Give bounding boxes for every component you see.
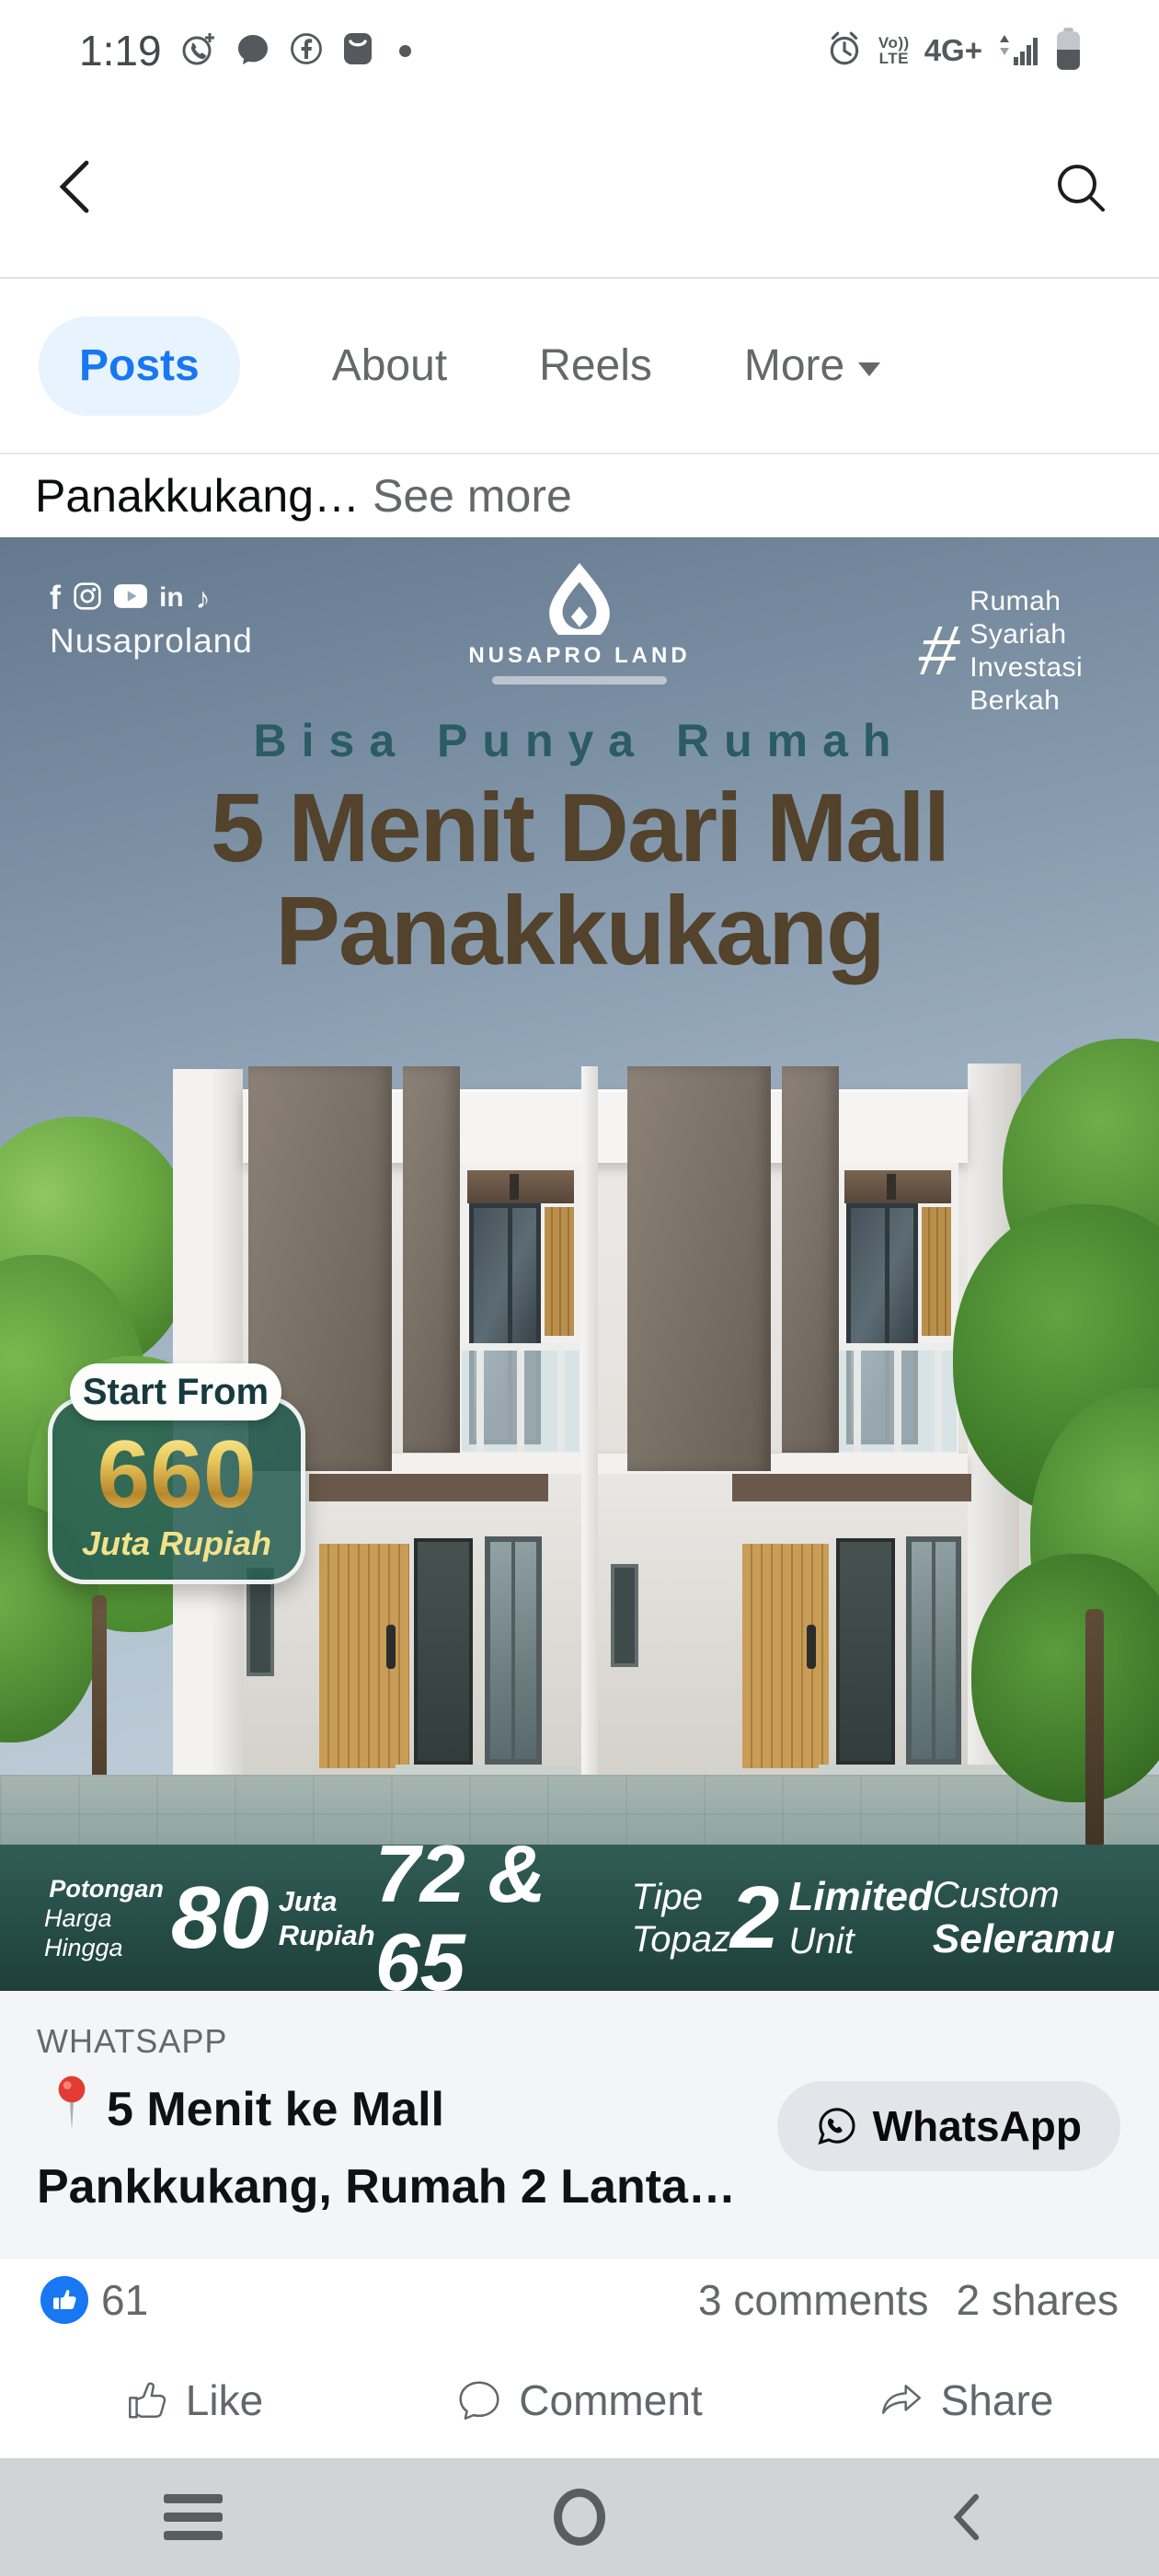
stat-units-label2: Unit — [788, 1920, 854, 1962]
status-right-group: Vo)) LTE 4G+ — [825, 28, 1081, 75]
whatsapp-button[interactable]: WhatsApp — [777, 2081, 1120, 2171]
stat-discount-unit1: Juta — [279, 1884, 338, 1918]
stat-custom: Custom Seleramu — [933, 1874, 1115, 1962]
post-truncated-text: Panakkukang… — [35, 469, 360, 523]
balcony-glass-railing — [462, 1343, 579, 1452]
ad-stats-bar: Potongan Harga Hingga 80 Juta Rupiah 72 … — [0, 1845, 1159, 1991]
price-badge-box: 660 Juta Rupiah — [48, 1397, 305, 1584]
stat-discount-prefix2: Harga Hingga — [44, 1903, 164, 1962]
stat-custom-line1: Custom — [933, 1874, 1060, 1916]
narrow-window — [485, 1536, 542, 1765]
tab-posts[interactable]: Posts — [39, 316, 240, 416]
cta-title-line1: 5 Menit ke Mall — [107, 2083, 444, 2136]
hashtag-line2: Investasi Berkah — [970, 651, 1159, 718]
volte-icon: Vo)) LTE — [878, 35, 910, 66]
ad-tagline: Bisa Punya Rumah — [0, 714, 1159, 767]
alarm-icon — [825, 29, 864, 73]
pin-icon — [52, 2074, 92, 2153]
comment-button[interactable]: Comment — [386, 2375, 773, 2425]
stat-custom-line2: Seleramu — [933, 1916, 1115, 1962]
porch-soffit — [309, 1474, 548, 1501]
tab-about[interactable]: About — [332, 340, 447, 391]
tree-right — [947, 1039, 1159, 1848]
share-button[interactable]: Share — [773, 2375, 1159, 2425]
tab-reels[interactable]: Reels — [539, 340, 652, 391]
post-text-row: Panakkukang… See more — [0, 454, 1159, 537]
like-button[interactable]: Like — [0, 2375, 386, 2425]
menu-icon — [164, 2494, 223, 2540]
stat-types-value: 72 & 65 — [375, 1830, 623, 1992]
stat-types-label1: Tipe — [632, 1876, 703, 1918]
stat-discount-prefix1: Potongan — [49, 1874, 163, 1903]
brand-tagline-bar — [492, 676, 667, 684]
price-value: 660 — [52, 1427, 301, 1523]
hashtag-icon: # — [914, 619, 965, 684]
back-button[interactable] — [52, 157, 96, 221]
whatsapp-notification-icon — [180, 30, 217, 72]
wood-slat-panel — [319, 1544, 409, 1768]
tab-more-label: More — [744, 340, 844, 391]
nusapro-logo-icon — [540, 561, 619, 635]
stat-discount-value: 80 — [171, 1874, 270, 1962]
network-type-label: 4G+ — [924, 33, 982, 68]
engagement-row: 61 3 comments 2 shares — [0, 2259, 1159, 2341]
cta-source-label: WHATSAPP — [37, 2022, 1120, 2061]
cta-title-line2: Pankkukang, Rumah 2 Lanta… — [37, 2160, 736, 2214]
price-badge: 660 Juta Rupiah Start From — [48, 1363, 305, 1588]
door-handle — [386, 1625, 396, 1669]
clock-time: 1:19 — [79, 26, 162, 75]
comment-button-label: Comment — [519, 2375, 702, 2425]
price-unit: Juta Rupiah — [52, 1524, 301, 1563]
profile-tabs: Posts About Reels More — [0, 279, 1159, 454]
comment-bubble-icon — [456, 2377, 502, 2423]
tab-posts-label: Posts — [79, 340, 200, 391]
price-badge-label: Start From — [70, 1363, 281, 1420]
home-circle-icon — [554, 2489, 605, 2546]
cta-section: WHATSAPP 5 Menit ke Mall Pankkukang, Rum… — [0, 1991, 1159, 2259]
whatsapp-button-label: WhatsApp — [873, 2101, 1082, 2151]
mail-notification-icon — [342, 31, 373, 71]
upper-recess-left — [460, 1163, 581, 1454]
thumb-up-icon — [123, 2377, 169, 2423]
ad-headline: 5 Menit Dari Mall Panakkukang — [0, 776, 1159, 983]
ad-headline-line1: 5 Menit Dari Mall — [0, 776, 1159, 880]
share-button-label: Share — [941, 2375, 1054, 2425]
hashtag-block: # Rumah Syariah Investasi Berkah — [920, 585, 1159, 718]
wood-accent — [545, 1207, 574, 1336]
concrete-panel — [782, 1066, 839, 1453]
concrete-panel — [627, 1066, 771, 1471]
pendant-light — [510, 1174, 519, 1200]
battery-icon — [1056, 28, 1081, 75]
stat-types: 72 & 65 Tipe Topaz — [375, 1830, 730, 1992]
android-back-button[interactable] — [773, 2490, 1159, 2545]
wood-slat-panel — [742, 1544, 829, 1768]
balcony-glass-railing — [839, 1343, 957, 1452]
like-reaction-badge[interactable] — [40, 2276, 88, 2324]
notification-dot-icon — [399, 45, 411, 57]
tab-more[interactable]: More — [744, 340, 880, 391]
back-chevron-icon — [946, 2490, 986, 2545]
stat-units: 2 Limited Unit — [730, 1874, 933, 1962]
share-arrow-icon — [878, 2377, 924, 2423]
stat-discount: Potongan Harga Hingga 80 Juta Rupiah — [44, 1874, 375, 1962]
signal-strength-icon — [997, 29, 1041, 73]
tab-about-label: About — [332, 340, 447, 391]
cta-title-link[interactable]: 5 Menit ke Mall Pankkukang, Rumah 2 Lant… — [37, 2074, 754, 2221]
facebook-notification-icon — [289, 31, 324, 71]
shares-count[interactable]: 2 shares — [957, 2275, 1119, 2325]
concrete-panel — [403, 1066, 460, 1453]
search-button[interactable] — [1052, 159, 1107, 219]
post-action-bar: Like Comment Share — [0, 2341, 1159, 2458]
stat-types-label2: Topaz — [632, 1918, 731, 1961]
stat-discount-unit2: Rupiah — [279, 1918, 375, 1952]
entry-door — [414, 1538, 473, 1765]
door-handle — [807, 1625, 816, 1669]
reaction-count[interactable]: 61 — [101, 2275, 148, 2325]
status-left-group: 1:19 — [79, 26, 411, 75]
stat-units-value: 2 — [730, 1874, 779, 1962]
whatsapp-icon — [816, 2105, 858, 2147]
ad-headline-line2: Panakkukang — [0, 880, 1159, 983]
post-ad-image[interactable]: f in ♪ Nusaproland NUSAPRO LAND # Rumah … — [0, 537, 1159, 1991]
ground-small-window — [611, 1564, 638, 1667]
like-button-label: Like — [186, 2375, 263, 2425]
hashtag-line1: Rumah Syariah — [970, 585, 1159, 651]
status-bar: 1:19 Vo)) LTE 4G+ — [0, 0, 1159, 101]
upper-recess-right — [837, 1163, 958, 1454]
center-divider-wall — [581, 1066, 598, 1775]
recents-button[interactable] — [0, 2494, 386, 2540]
stat-units-label1: Limited — [788, 1874, 932, 1920]
chevron-down-icon — [858, 362, 880, 376]
porch-soffit — [732, 1474, 971, 1501]
app-navigation-bar — [0, 101, 1159, 279]
messenger-notification-icon — [235, 31, 270, 71]
facebook-mobile-screen: 1:19 Vo)) LTE 4G+ — [0, 0, 1159, 2576]
comments-count[interactable]: 3 comments — [698, 2275, 929, 2325]
android-navigation-bar — [0, 2458, 1159, 2576]
see-more-link[interactable]: See more — [373, 469, 572, 523]
entry-door — [836, 1538, 895, 1765]
tab-reels-label: Reels — [539, 340, 652, 391]
home-button[interactable] — [386, 2489, 773, 2546]
pendant-light — [887, 1174, 896, 1200]
